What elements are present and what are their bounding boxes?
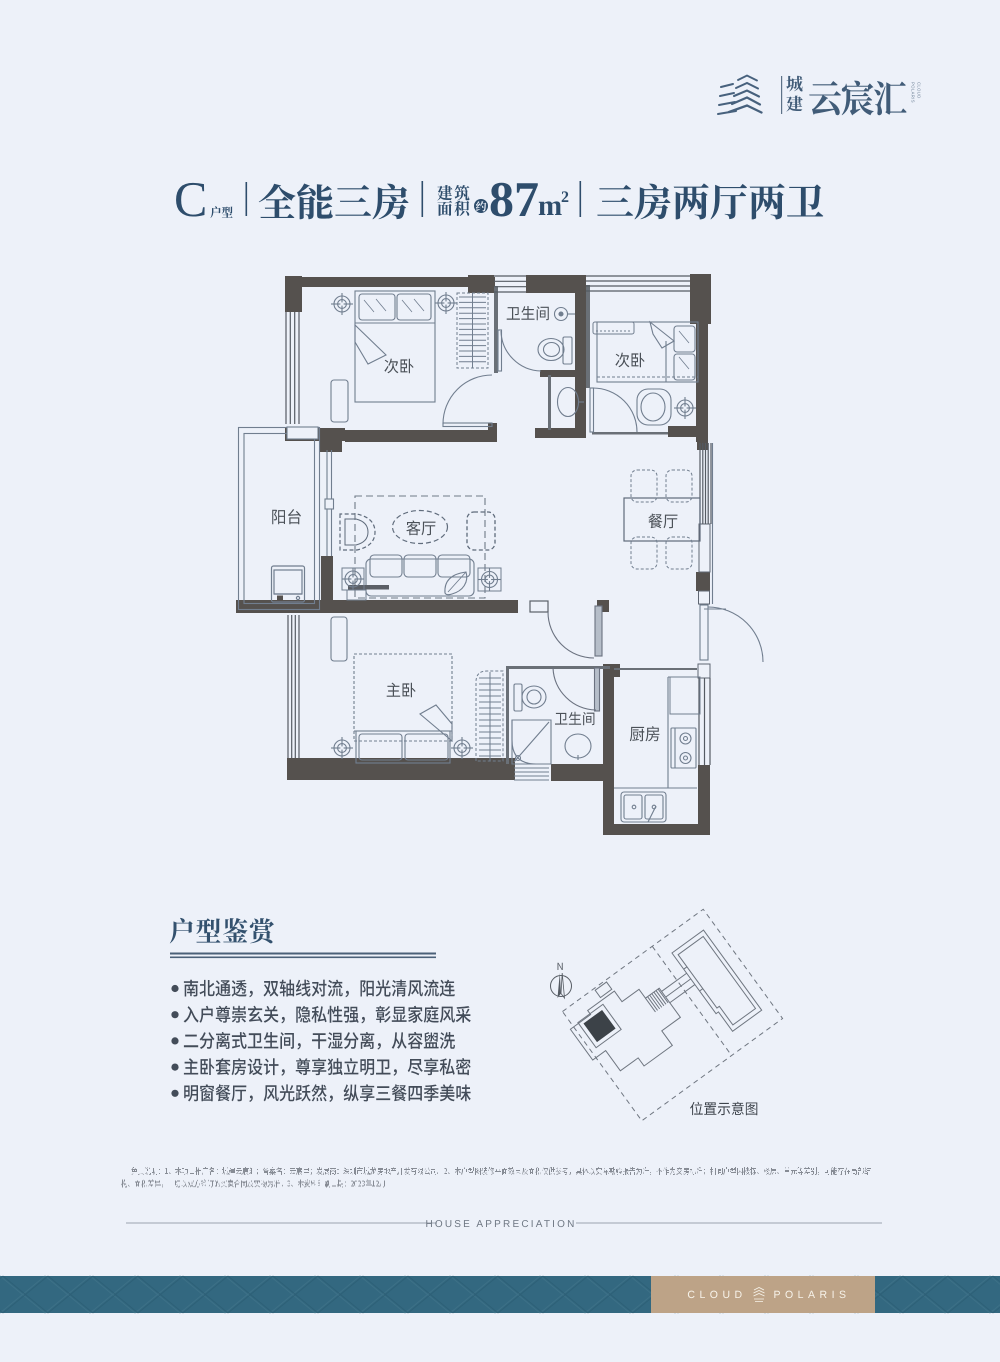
svg-text:POLARIS: POLARIS [773, 1289, 850, 1301]
svg-text:CLOUD: CLOUD [917, 82, 922, 99]
svg-text:POLARIS: POLARIS [911, 82, 916, 103]
svg-text:87: 87 [489, 171, 539, 227]
svg-text:C: C [174, 171, 207, 227]
svg-text:HOUSE APPRECIATION: HOUSE APPRECIATION [425, 1219, 576, 1230]
svg-text:m: m [538, 190, 562, 222]
svg-text:2: 2 [561, 189, 569, 206]
svg-text:CLOUD: CLOUD [687, 1289, 746, 1301]
